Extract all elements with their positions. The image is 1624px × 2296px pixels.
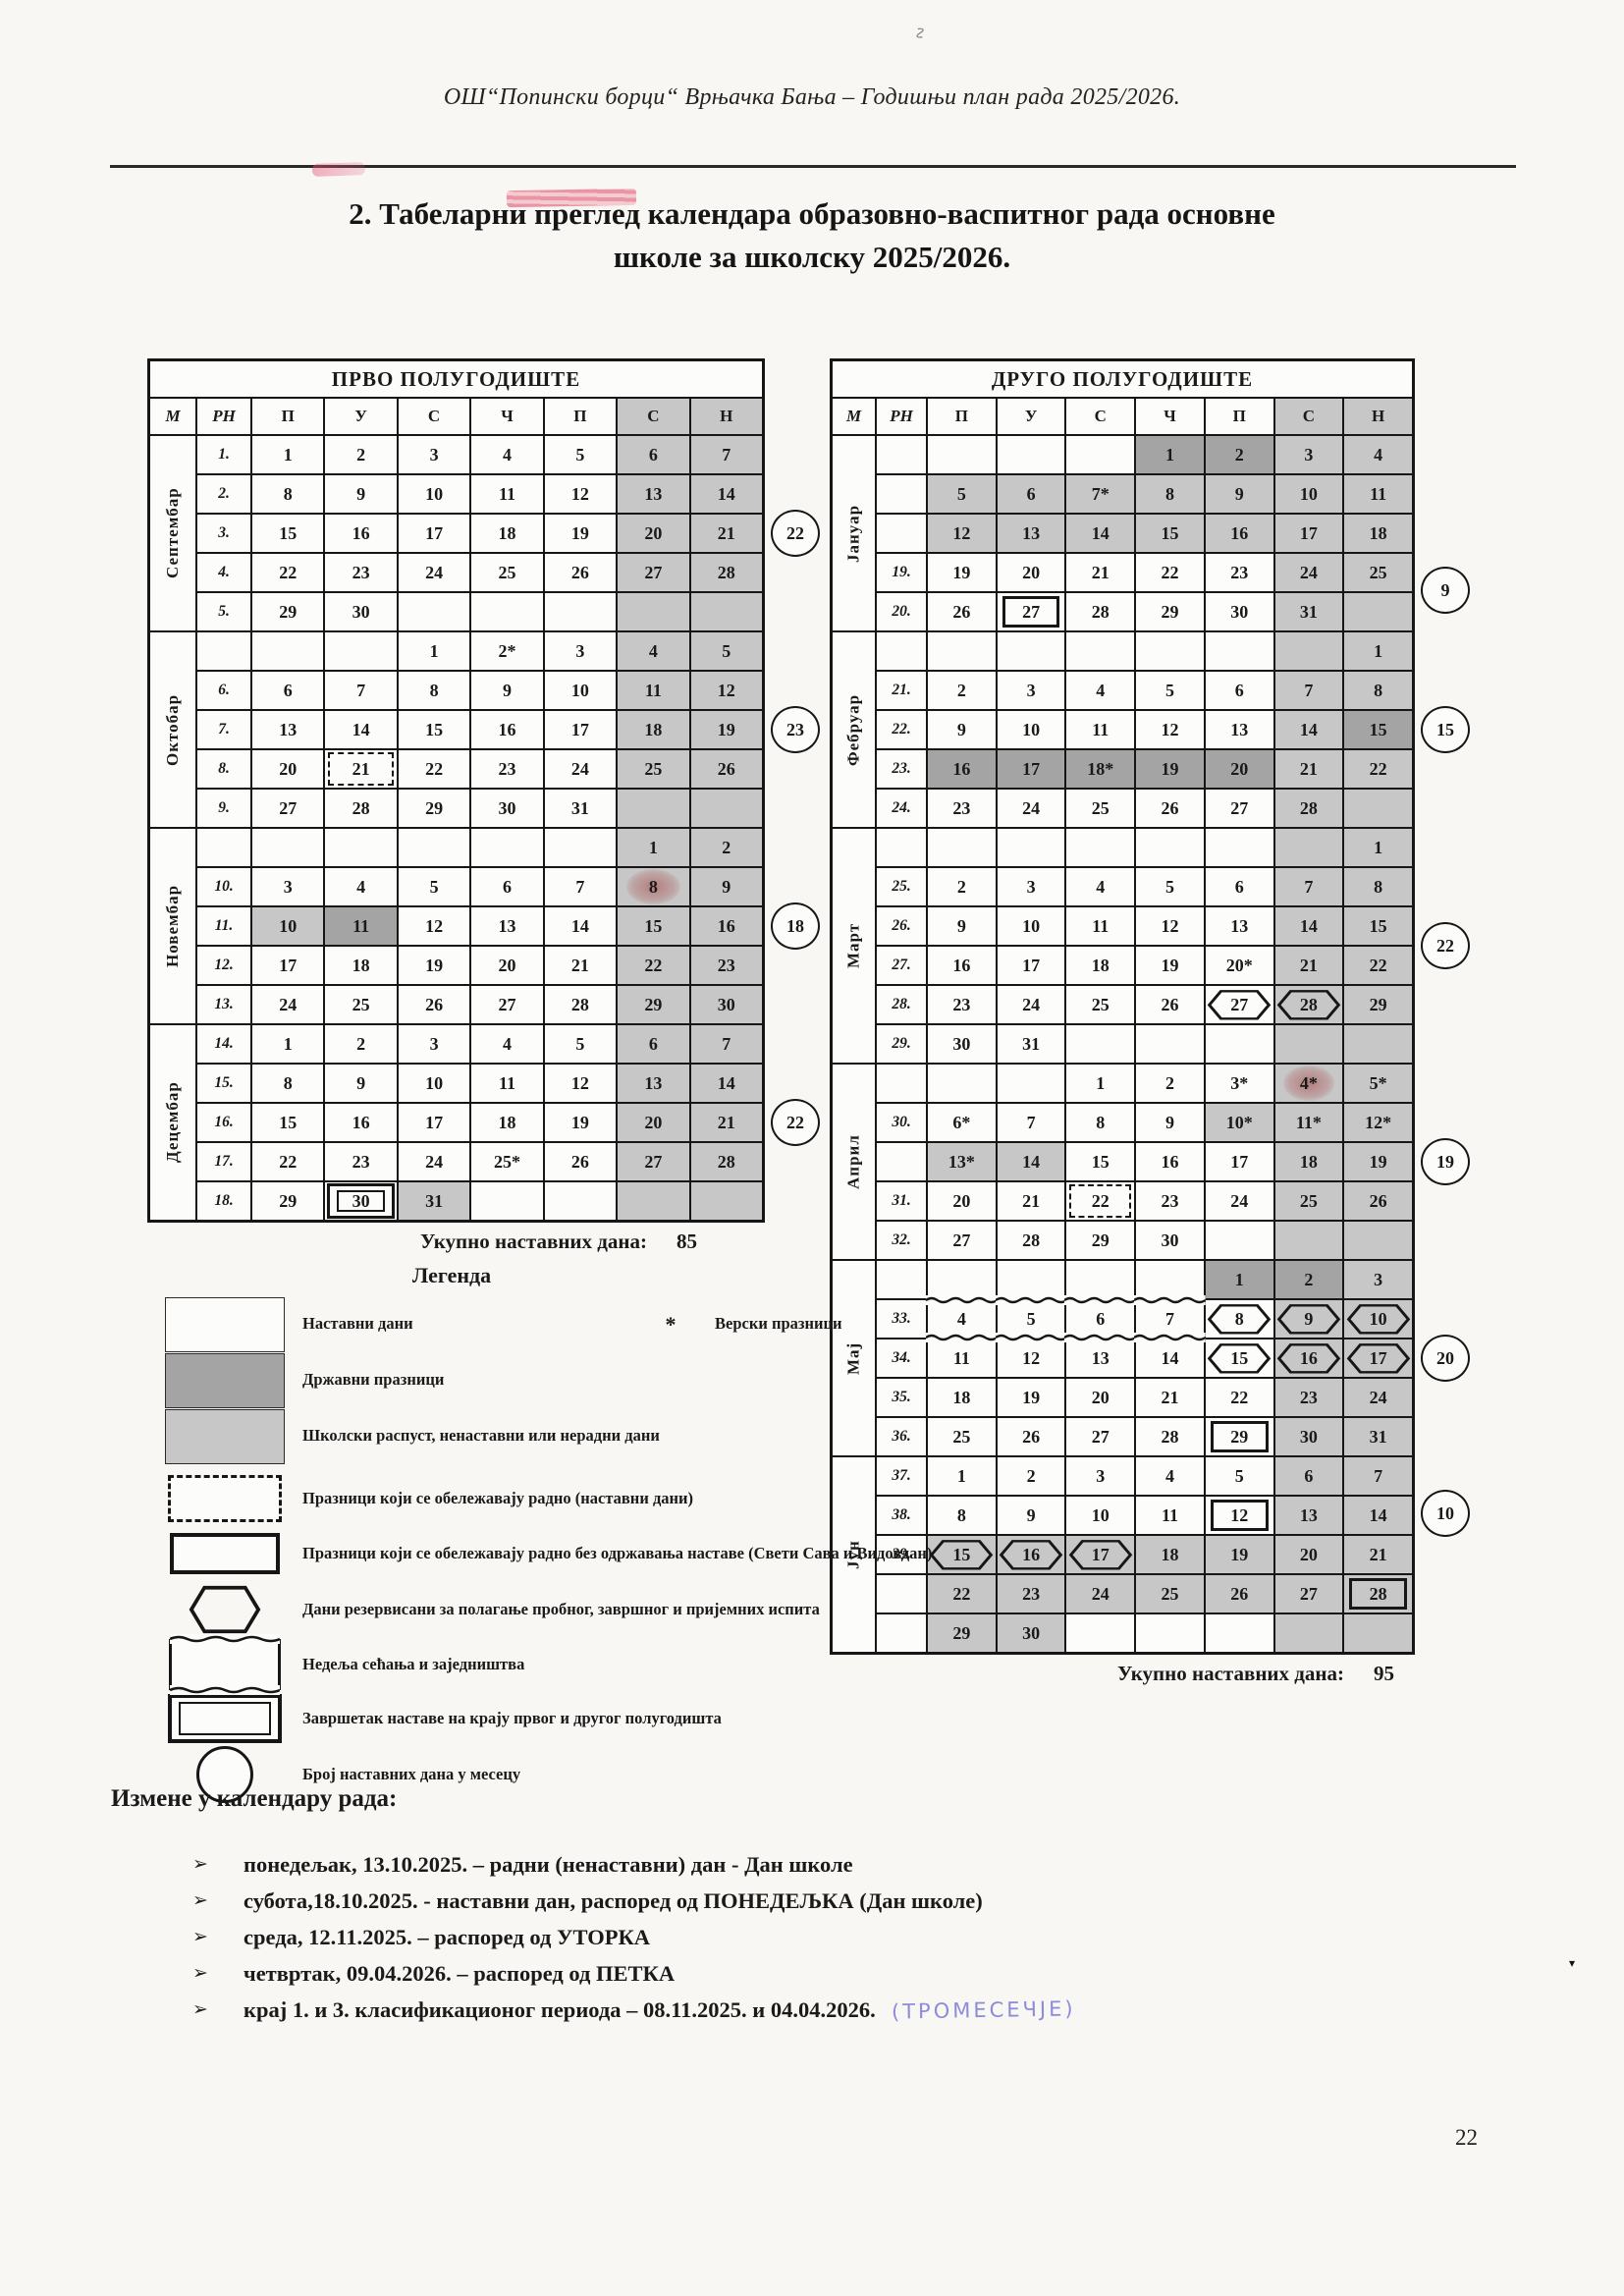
day-cell: 10 [251,906,324,946]
day-cell: 7 [997,1103,1066,1142]
day-number: 5 [1027,1309,1036,1330]
day-cell: 12* [1343,1103,1413,1142]
day-number: 13 [279,720,297,740]
legend-item: Празници који се обележавају радно (наст… [147,1471,1384,1526]
legend-label: Завршетак наставе на крају првог и друго… [302,1709,722,1729]
day-number: 7 [1374,1466,1382,1487]
day-cell [1205,1024,1274,1064]
day-number: 23 [352,563,370,583]
day-cell: 23 [470,749,543,789]
day-cell: 13 [997,514,1066,553]
state-holiday-swatch-icon [147,1353,302,1408]
day-header-cell: С [1274,398,1344,435]
legend-label: Верски празници [715,1314,1039,1335]
day-number: 26 [952,602,970,623]
day-number: 22 [1230,1388,1248,1408]
change-item: ➢четвртак, 09.04.2026. – распоред од ПЕТ… [192,1961,1567,1987]
day-cell: 23 [324,553,397,592]
day-header-cell: П [1205,398,1274,435]
dashed-box-icon [168,1475,282,1522]
day-cell: 21 [324,749,397,789]
change-item-text: понедељак, 13.10.2025. – радни (ненастав… [244,1852,853,1877]
legend-label: Наставни дани [302,1314,626,1335]
month-block-јануар: Јануар1234567*8910111213141516171819.192… [832,435,1413,631]
day-number: 4 [649,641,658,662]
day-number: 24 [425,563,443,583]
day-cell: 27 [927,1221,997,1260]
day-number: 22 [1370,759,1387,780]
day-number: 9 [1165,1113,1174,1133]
day-number: 4 [1374,445,1382,465]
day-cell [544,828,617,867]
day-number: 22 [279,563,297,583]
day-cell: 1 [1135,435,1205,474]
remembrance-week-wave-icon [1064,1295,1136,1305]
day-number: 14 [718,1073,735,1094]
day-number: 29 [952,1623,970,1644]
day-number: 18 [352,956,370,976]
day-cell: 1 [251,1024,324,1064]
day-cell: 3 [398,1024,470,1064]
day-number: 8 [1374,681,1382,701]
change-item: ➢крај 1. и 3. класификационог периода – … [192,1997,1567,2023]
week-number-cell: 32. [876,1221,927,1260]
day-cell [470,828,543,867]
day-number: 1 [430,641,439,662]
day-cell: 2 [324,435,397,474]
day-cell: 12 [1135,906,1205,946]
day-number: 24 [425,1152,443,1173]
day-number: 15 [1370,916,1387,937]
day-cell: 13 [617,1064,689,1103]
day-cell: 12 [544,474,617,514]
day-number: 14 [1300,916,1318,937]
day-cell: 20 [927,1181,997,1221]
day-cell: 30 [927,1024,997,1064]
week-number-cell: 14. [196,1024,251,1064]
day-cell [251,828,324,867]
day-cell: 6* [927,1103,997,1142]
day-number: 12 [952,523,970,544]
day-number: 16 [352,523,370,544]
day-number: 23 [1230,563,1248,583]
day-cell: 27 [617,553,689,592]
month-name: Фебруар [832,631,876,828]
day-cell: 1 [1065,1064,1135,1103]
day-number: 4* [1300,1073,1318,1094]
day-cell: 5 [544,1024,617,1064]
day-number: 27 [1092,1427,1110,1448]
day-number: 2 [1304,1270,1313,1290]
teaching-days-count-badge: 15 [1421,706,1470,753]
day-cell: 13 [470,906,543,946]
day-number: 12 [1161,916,1178,937]
day-cell: 4 [1065,671,1135,710]
day-number: 3 [1027,877,1036,898]
day-number: 2 [1235,445,1244,465]
day-cell: 29 [617,985,689,1024]
legend: Легенда Наставни дани*Верски празнициДрж… [147,1263,1384,1803]
day-cell [997,631,1066,671]
day-cell: 21 [1274,946,1344,985]
day-number: 6* [952,1113,970,1133]
day-cell: 13 [1205,906,1274,946]
day-number: 4 [356,877,365,898]
page-title-line2: школе за школску 2025/2026. [0,236,1624,279]
day-number: 5 [957,484,966,505]
day-number: 3 [575,641,584,662]
day-cell: 21 [997,1181,1066,1221]
day-number: 27 [1230,995,1248,1015]
remembrance-week-wave-icon [996,1333,1067,1342]
day-number: 18 [498,523,515,544]
day-cell: 17 [1274,514,1344,553]
day-cell: 17 [398,1103,470,1142]
month-name: Новембар [149,828,196,1024]
day-number: 30 [352,602,370,623]
day-cell: 17 [398,514,470,553]
total-value: 85 [677,1230,697,1254]
day-number: 29 [1161,602,1178,623]
day-cell: 7 [544,867,617,906]
day-cell: 7* [1065,474,1135,514]
day-number: 18 [1161,1545,1178,1565]
day-header-cell: У [997,398,1066,435]
day-cell [927,631,997,671]
day-cell: 19 [398,946,470,985]
day-cell: 16 [470,710,543,749]
week-number-cell [196,828,251,867]
day-number: 10 [1300,484,1318,505]
day-header-cell: С [617,398,689,435]
day-cell [927,435,997,474]
day-cell: 29 [1065,1221,1135,1260]
week-number-cell: 16. [196,1103,251,1142]
day-number: 4 [1096,877,1105,898]
day-cell: 10 [544,671,617,710]
day-number: 9 [957,720,966,740]
day-number: 15 [279,1113,297,1133]
day-cell: 17 [544,710,617,749]
day-cell: 19 [1135,749,1205,789]
day-number: 16 [952,956,970,976]
day-cell [1065,1024,1135,1064]
day-cell: 3 [997,671,1066,710]
day-cell: 20 [1205,749,1274,789]
day-number: 4 [1165,1466,1174,1487]
day-cell: 20 [470,946,543,985]
day-number: 15 [1092,1152,1110,1173]
day-cell: 26 [1135,985,1205,1024]
day-number: 14 [1370,1505,1387,1526]
day-number: 23 [498,759,515,780]
day-number: 28 [1022,1230,1040,1251]
day-header-cell: Ч [470,398,543,435]
day-number: 5 [1165,877,1174,898]
legend-label: Недеља сећања и заједништва [302,1655,524,1675]
day-number: 9 [356,484,365,505]
legend-label: Празници који се обележавају радно без о… [302,1544,932,1564]
thick-box-icon [147,1533,302,1574]
day-number: 14 [718,484,735,505]
day-cell: 17 [1205,1142,1274,1181]
day-number: 12 [425,916,443,937]
day-number: 8 [284,484,293,505]
day-cell: 28 [690,1142,763,1181]
day-cell: 5 [927,474,997,514]
day-cell: 6 [617,435,689,474]
day-number: 22 [279,1152,297,1173]
day-number: 21 [718,523,735,544]
month-block-фебруар: Фебруар121.234567822.910111213141523.161… [832,631,1413,828]
remembrance-week-wave-icon [926,1295,998,1305]
week-number-cell [876,435,927,474]
day-cell: 26 [398,985,470,1024]
day-cell [1135,828,1205,867]
day-cell [1065,828,1135,867]
day-cell: 23 [690,946,763,985]
day-number: 31 [1022,1034,1040,1055]
day-number: 11 [352,916,369,937]
day-number: 5 [430,877,439,898]
day-cell: 28 [1274,789,1344,828]
day-number: 31 [425,1191,443,1212]
day-cell: 1 [251,435,324,474]
day-cell: 20* [1205,946,1274,985]
week-number-cell [196,631,251,671]
day-number: 5 [575,1034,584,1055]
day-cell: 14 [997,1142,1066,1181]
day-number: 7 [1304,681,1313,701]
day-number: 14 [1300,720,1318,740]
day-cell: 16 [997,1535,1066,1574]
week-number-cell: 22. [876,710,927,749]
day-cell: 17 [1343,1339,1413,1378]
day-number: 23 [718,956,735,976]
day-cell: 27 [251,789,324,828]
day-number: 25* [494,1152,520,1173]
day-number: 18 [498,1113,515,1133]
change-item: ➢субота,18.10.2025. - наставни дан, расп… [192,1888,1567,1914]
day-cell: 26 [1135,789,1205,828]
day-number: 20 [644,1113,662,1133]
day-cell [251,631,324,671]
day-number: 27 [644,563,662,583]
day-number: 6 [503,877,512,898]
teaching-days-count-badge: 20 [1421,1335,1470,1382]
change-item-text: крај 1. и 3. класификационог периода – 0… [244,1997,876,2022]
day-number: 26 [571,1152,589,1173]
day-number: 28 [571,995,589,1015]
teaching-days-count-badge: 22 [771,1099,820,1146]
day-cell [324,828,397,867]
double-box-icon [168,1694,282,1743]
day-number: 20 [952,1191,970,1212]
day-number: 1 [957,1466,966,1487]
legend-label: Школски распуст, ненаставни или нерадни … [302,1426,660,1447]
wavy-box-icon [147,1639,302,1690]
day-number: 9 [356,1073,365,1094]
week-number-cell [876,1142,927,1181]
day-cell: 8 [1205,1299,1274,1339]
day-number: 5 [722,641,731,662]
week-number-cell: 23. [876,749,927,789]
remembrance-week-wave-icon [170,1634,280,1644]
month-name: Децембар [149,1024,196,1221]
day-cell: 15 [1065,1142,1135,1181]
day-number: 24 [571,759,589,780]
day-number: 7 [722,445,731,465]
day-number: 11* [1296,1113,1322,1133]
day-number: 17 [1300,523,1318,544]
day-number: 3 [284,877,293,898]
day-cell: 9 [324,474,397,514]
day-number: 20 [1230,759,1248,780]
day-cell: 8 [398,671,470,710]
day-cell: 14 [1274,906,1344,946]
day-number: 11 [1092,916,1109,937]
day-cell: 24 [251,985,324,1024]
day-number: 2* [498,641,515,662]
day-cell: 4* [1274,1064,1344,1103]
day-number: 20 [644,523,662,544]
day-cell [1343,592,1413,631]
teaching-day-swatch-icon [165,1297,285,1352]
day-cell: 14 [1065,514,1135,553]
school-break-swatch-icon [165,1409,285,1464]
day-cell: 15 [398,710,470,749]
month-block-септембар: Септембар1.12345672.8910111213143.151617… [149,435,763,631]
month-name: Април [832,1064,876,1260]
week-number-cell: 3. [196,514,251,553]
day-cell: 2 [324,1024,397,1064]
day-cell: 8 [1065,1103,1135,1142]
day-number: 30 [1022,1623,1040,1644]
day-number: 28 [1370,1584,1387,1605]
day-number: 30 [1300,1427,1318,1448]
day-cell: 27 [1205,985,1274,1024]
day-number: 23 [1300,1388,1318,1408]
day-number: 8 [649,877,658,898]
day-number: 10 [571,681,589,701]
day-number: 1 [284,445,293,465]
day-number: 19 [1230,1545,1248,1565]
legend-item: Школски распуст, ненаставни или нерадни … [147,1408,1384,1464]
day-cell: 22 [617,946,689,985]
day-number: 11 [499,484,515,505]
day-cell: 11 [1065,906,1135,946]
day-number: 12 [1230,1505,1248,1526]
day-cell: 16 [324,1103,397,1142]
bullet-arrow-icon: ➢ [192,1889,208,1912]
day-number: 7 [1165,1309,1174,1330]
change-item-text: четвртак, 09.04.2026. – распоред од ПЕТК… [244,1961,675,1986]
day-cell: 12 [544,1064,617,1103]
day-number: 22 [425,759,443,780]
day-number: 3 [430,1034,439,1055]
day-number: 22 [952,1584,970,1605]
day-cell: 30 [1205,592,1274,631]
day-cell: 29 [1343,985,1413,1024]
day-number: 5* [1370,1073,1387,1094]
day-number: 24 [1370,1388,1387,1408]
day-cell [1343,1024,1413,1064]
day-cell [1274,1024,1344,1064]
day-cell: 1 [1343,631,1413,671]
week-number-cell: 20. [876,592,927,631]
day-number: 26 [425,995,443,1015]
day-cell: 5 [1135,867,1205,906]
day-cell: 28 [544,985,617,1024]
day-cell: 12 [690,671,763,710]
day-cell [1205,828,1274,867]
day-cell: 19 [544,1103,617,1142]
day-number: 15 [1161,523,1178,544]
hexagon-icon [170,1584,280,1635]
remembrance-week-wave-icon [996,1295,1067,1305]
day-cell [324,631,397,671]
day-cell: 15 [1343,906,1413,946]
day-header-cell: Н [690,398,763,435]
day-number: 2 [957,877,966,898]
remembrance-week-wave-icon [1134,1295,1206,1305]
day-number: 21 [1300,759,1318,780]
day-cell: 11 [470,474,543,514]
scan-artifact-mark: ∿ [910,24,934,50]
day-number: 29 [425,798,443,819]
day-number: 15 [644,916,662,937]
day-number: 30 [352,1191,370,1212]
day-number: 16 [952,759,970,780]
day-cell: 23 [1135,1181,1205,1221]
day-cell: 19 [1135,946,1205,985]
day-number: 14 [1022,1152,1040,1173]
day-cell: 13* [927,1142,997,1181]
day-number: 17 [571,720,589,740]
day-cell: 13 [617,474,689,514]
day-number: 18 [1092,956,1110,976]
day-header-cell: П [544,398,617,435]
day-cell: 15 [251,1103,324,1142]
day-cell: 8 [1135,474,1205,514]
day-cell: 14 [690,474,763,514]
day-cell: 15 [251,514,324,553]
week-number-cell: 28. [876,985,927,1024]
day-cell: 26 [927,592,997,631]
week-number-cell: 8. [196,749,251,789]
day-cell [927,828,997,867]
week-number-cell [876,474,927,514]
day-number: 17 [279,956,297,976]
day-cell: 30 [470,789,543,828]
day-number: 15 [279,523,297,544]
day-number: 26 [1022,1427,1040,1448]
first-semester-total: Укупно наставних дана: 85 [147,1230,697,1254]
day-cell: 10 [1274,474,1344,514]
day-cell: 18 [470,514,543,553]
day-number: 18 [952,1388,970,1408]
day-number: 29 [644,995,662,1015]
day-number: 15 [1370,720,1387,740]
change-item: ➢среда, 12.11.2025. – распоред од УТОРКА [192,1925,1567,1950]
legend-item: Дани резервисани за полагање пробног, за… [147,1581,1384,1638]
day-cell: 2 [1135,1064,1205,1103]
day-header-cell: П [927,398,997,435]
day-number: 25 [952,1427,970,1448]
day-cell: 25 [1065,985,1135,1024]
day-number: 3* [1230,1073,1248,1094]
day-number: 13 [1230,916,1248,937]
